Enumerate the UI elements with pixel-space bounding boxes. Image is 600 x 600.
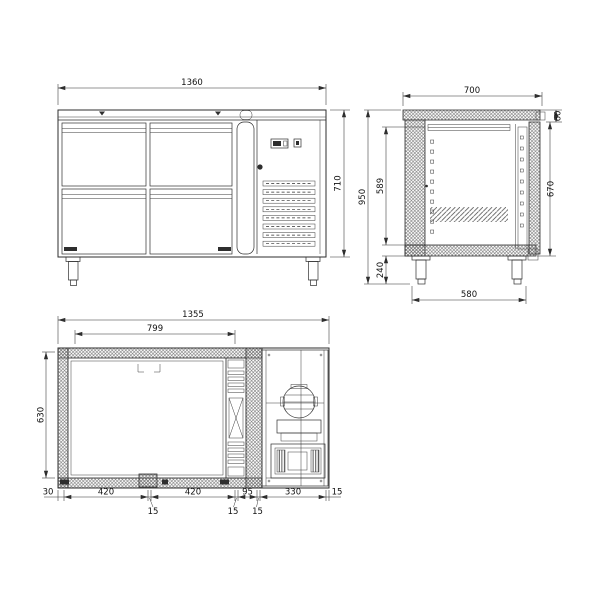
center-mark	[99, 112, 105, 116]
switch-dot	[296, 141, 299, 145]
insulated-back-wall	[405, 120, 425, 256]
screw-dot	[320, 480, 322, 482]
leg-shoulder	[508, 256, 526, 260]
leg-shoulder	[412, 256, 430, 260]
mullion-top-tab	[240, 111, 252, 120]
shelf-rail-clips-door	[520, 136, 523, 227]
leg-foot	[514, 279, 521, 284]
screw-dot	[320, 354, 322, 356]
housing-slat	[228, 460, 244, 464]
housing-slat	[228, 442, 244, 446]
compressor-base	[277, 420, 321, 433]
insulated-wall-left	[58, 348, 68, 488]
shelf-clip	[431, 230, 434, 233]
leg-shaft	[512, 260, 522, 279]
vent-grille	[263, 181, 315, 246]
dim-door-span: 799	[75, 324, 235, 344]
insulated-wall-bottom	[58, 478, 262, 488]
chain-label-door1: 420	[98, 488, 114, 498]
mullion-strip	[237, 122, 254, 254]
front-leg-right	[306, 257, 320, 286]
leg-shoulder	[66, 257, 80, 262]
compressor-cap	[291, 385, 307, 389]
compressor-base-plate	[281, 433, 317, 441]
leg-shaft	[416, 260, 426, 279]
door-pivot-mark	[220, 480, 229, 485]
insulated-wall-top	[58, 348, 262, 358]
evaporator-hatch-area	[430, 207, 508, 222]
condenser-fins	[311, 450, 319, 472]
wall-fixing-dot	[425, 185, 428, 188]
dim-leg-height: 240	[376, 256, 405, 284]
chain-label-gap3: 15	[252, 507, 263, 517]
insulated-bottom-wall	[405, 245, 536, 256]
hinge-mark	[218, 247, 231, 251]
housing-slat	[228, 377, 244, 381]
center-mark	[215, 112, 221, 116]
dim-side-depth: 700	[403, 86, 542, 106]
machine-compartment	[262, 350, 328, 486]
shelf-clip	[431, 150, 434, 153]
housing-slat	[228, 389, 244, 393]
display-button	[284, 141, 288, 146]
chain-label-gap2: 15	[228, 507, 239, 517]
chain-label-right-wall: 15	[332, 488, 343, 498]
front-drawers	[62, 123, 232, 254]
dim-bottom-chain: 30 420 15 420 15 95 15 330 15	[43, 488, 343, 518]
leg-shoulder	[306, 257, 320, 262]
plan-view: 1355 799	[37, 310, 343, 517]
plan-outer-body	[58, 348, 329, 488]
front-cabinet-body	[58, 110, 326, 257]
fan-motor	[288, 452, 307, 470]
interior-cavity	[425, 125, 523, 234]
dim-leg-height-label: 240	[376, 262, 386, 278]
compressor-mount	[281, 397, 285, 406]
center-mullion-block	[139, 474, 157, 487]
housing-slat	[228, 448, 244, 452]
shelf-clip	[520, 202, 523, 205]
front-view: 1360	[58, 78, 350, 286]
leg-foot	[311, 280, 317, 286]
side-view: 700	[358, 86, 564, 304]
housing-cap	[228, 467, 244, 476]
condenser-fins	[277, 450, 285, 472]
dim-overall-height-label: 950	[358, 189, 368, 205]
dim-plan-depth: 630	[37, 352, 56, 478]
machine-front-panel	[257, 120, 320, 254]
refrigerated-counter-drawing: 1360	[0, 0, 600, 600]
display-screen	[273, 141, 281, 146]
compressor-mount	[314, 397, 318, 406]
dim-plan-width: 1355	[58, 310, 329, 344]
dim-front-width-label: 1360	[181, 78, 203, 88]
shelf-clip	[431, 160, 434, 163]
chain-label-gap1: 15	[148, 507, 159, 517]
dim-door-height-label: 670	[547, 181, 557, 197]
side-leg-right	[508, 256, 526, 284]
housing-slat	[228, 454, 244, 458]
evaporator-housing	[226, 358, 246, 478]
shelf-clip	[431, 170, 434, 173]
door-inner-liner	[518, 127, 527, 249]
shelf-clip	[431, 190, 434, 193]
leg-foot	[418, 279, 425, 284]
screw-dot	[268, 354, 270, 356]
shelf-clip	[520, 147, 523, 150]
dim-door-span-label: 799	[147, 324, 163, 334]
dim-front-width: 1360	[58, 78, 326, 105]
dim-leg-span-label: 580	[461, 290, 477, 300]
chain-label-machine: 330	[285, 488, 301, 498]
dim-front-height-label: 710	[334, 175, 344, 191]
insulated-wall-divider	[246, 348, 262, 488]
side-leg-left	[412, 256, 430, 284]
cavity-liner-inset	[71, 361, 223, 475]
shelf-clip	[520, 180, 523, 183]
leg-foot	[71, 280, 77, 286]
shelf-clip	[520, 191, 523, 194]
door-handle-bracket	[138, 364, 144, 372]
chain-label-left-wall: 30	[43, 488, 54, 498]
screw-dot	[268, 480, 270, 482]
lock-icon	[257, 164, 262, 169]
shelf-clip	[520, 136, 523, 139]
dim-interior-height-label: 589	[376, 178, 386, 194]
chain-label-door2: 420	[185, 488, 201, 498]
chain-label-housing: 95	[242, 488, 253, 498]
hinge-mark	[64, 247, 77, 251]
dim-overall-height: 950	[358, 110, 410, 284]
shelf-clip	[520, 224, 523, 227]
shelf-clip	[431, 140, 434, 143]
door-pivot-mark	[60, 480, 69, 485]
housing-cap	[228, 360, 244, 368]
shelf-clip	[431, 180, 434, 183]
leg-shaft	[69, 262, 79, 281]
housing-slat	[228, 371, 244, 375]
dim-front-height: 710	[330, 110, 350, 257]
shelf-clip	[520, 158, 523, 161]
dim-side-depth-label: 700	[464, 86, 480, 96]
housing-slat	[228, 383, 244, 387]
shelf-clip	[520, 169, 523, 172]
worktop-section	[403, 110, 540, 120]
shelf-clip	[520, 213, 523, 216]
cavity-liner	[68, 358, 226, 478]
dim-leg-span: 580	[412, 286, 526, 304]
door-handle-bracket	[154, 364, 160, 372]
door-section	[529, 122, 540, 254]
dim-plan-width-label: 1355	[182, 310, 204, 320]
leg-shaft	[309, 262, 319, 281]
technical-drawing-canvas: 1360	[0, 0, 600, 600]
door-pivot-mark	[162, 480, 168, 485]
dim-worktop-thickness-label: 60	[554, 111, 564, 122]
dim-plan-depth-label: 630	[37, 407, 47, 423]
front-leg-left	[66, 257, 80, 286]
shelf-clip	[431, 200, 434, 203]
